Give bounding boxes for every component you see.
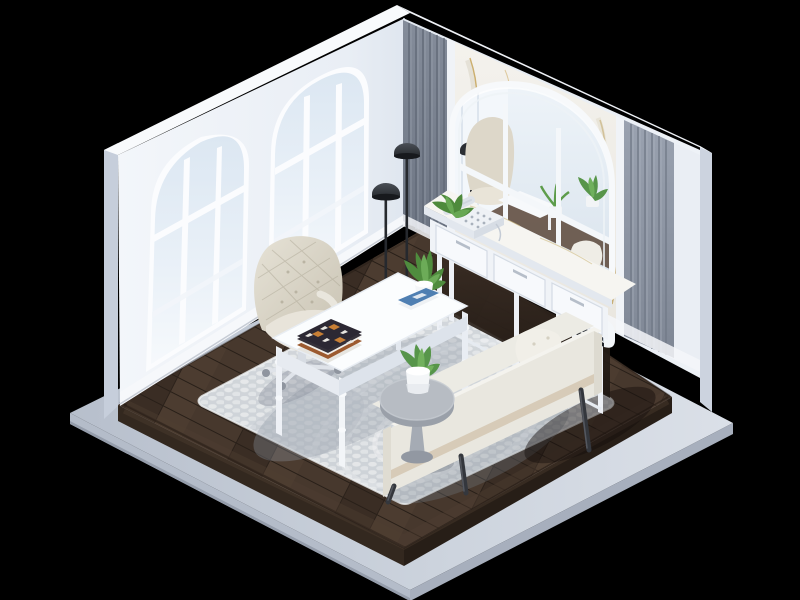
wall-trim: [616, 116, 624, 336]
sofa-arm-end: [594, 331, 602, 396]
mirror-bar-vertical: [503, 104, 508, 230]
mirror-bar-vertical: [556, 128, 561, 256]
right-wall-outer-side: [700, 146, 712, 412]
table-base: [401, 451, 433, 464]
right-wall-end: [674, 143, 700, 372]
lamp-pole: [385, 200, 388, 288]
slat-panel-right: [624, 120, 674, 358]
caster-wheel: [262, 369, 270, 377]
room-scene: [0, 0, 800, 600]
isometric-room-render: [0, 0, 800, 600]
window-mullion: [335, 83, 342, 249]
sofa-arm-left: [383, 426, 391, 497]
left-wall-outer-side: [104, 143, 118, 419]
